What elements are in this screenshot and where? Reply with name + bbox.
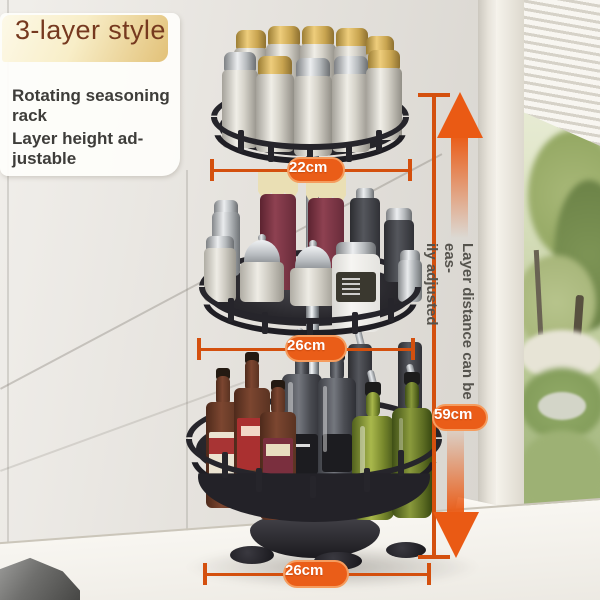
dimension-label-top: 22cm xyxy=(287,157,345,183)
up-arrow-icon xyxy=(437,92,483,138)
rail-post xyxy=(256,468,262,492)
rail-post xyxy=(352,312,358,334)
rail-post xyxy=(364,468,370,492)
blind-slats xyxy=(524,0,600,152)
window-blinds xyxy=(524,0,600,152)
feature-line: rack xyxy=(12,106,170,126)
rail-post xyxy=(262,312,268,334)
dimension-cap xyxy=(427,563,431,585)
jar-lid xyxy=(368,50,400,70)
jar-lid xyxy=(268,26,300,46)
window-frame xyxy=(496,0,524,525)
dimension-cap xyxy=(411,338,415,360)
rail-post xyxy=(388,298,394,322)
rail-post xyxy=(398,450,404,476)
dimension-cap xyxy=(203,563,207,585)
note-line: Layer distance can be eas- xyxy=(440,243,476,421)
window-glass xyxy=(524,0,600,508)
dimension-label-bottom: 26cm xyxy=(283,560,349,588)
feature-line: Layer height ad- xyxy=(12,129,170,149)
feature-text: Layer height ad-justable xyxy=(12,129,170,169)
garden-stone xyxy=(538,392,586,420)
rail-post xyxy=(222,452,228,478)
jar-lid xyxy=(236,30,266,50)
jar-lid xyxy=(258,56,292,76)
rail-post xyxy=(268,142,274,162)
product-photo: 3-layer style Rotating seasoningrack Lay… xyxy=(0,0,600,600)
rail-post xyxy=(310,476,316,498)
up-arrow-shaft xyxy=(451,134,468,238)
rail-post xyxy=(228,298,234,322)
info-card: 3-layer style Rotating seasoningrack Lay… xyxy=(0,13,180,176)
dimension-label-middle: 26cm xyxy=(285,335,347,362)
style-badge: 3-layer style xyxy=(2,15,168,62)
tile-seam xyxy=(186,170,188,545)
window-frame xyxy=(478,0,496,545)
jar-lid xyxy=(224,52,256,72)
feature-line: Rotating seasoning xyxy=(12,86,170,106)
dimension-cap xyxy=(197,338,201,360)
down-arrow-icon xyxy=(433,512,479,558)
jar-lid xyxy=(302,26,334,46)
rack-foot xyxy=(230,546,274,564)
feature-text: Rotating seasoningrack xyxy=(12,86,170,126)
jar-lid xyxy=(334,56,368,76)
feature-line: justable xyxy=(12,149,170,169)
bottle-neck xyxy=(271,387,285,415)
dimension-cap xyxy=(408,159,412,181)
rail-post xyxy=(376,130,382,152)
dimension-label-height: 59cm xyxy=(432,404,488,431)
rail-post xyxy=(346,142,352,162)
down-arrow-shaft xyxy=(447,424,464,516)
bottle-neck xyxy=(405,382,419,410)
rail-post xyxy=(238,130,244,152)
jar-lid xyxy=(296,58,330,78)
adjustable-note: Layer distance can be eas-ily adjusted xyxy=(440,243,476,421)
bush xyxy=(524,430,600,508)
dimension-cap xyxy=(210,159,214,181)
note-line: ily adjusted xyxy=(422,243,440,421)
bottle-neck xyxy=(366,392,380,418)
